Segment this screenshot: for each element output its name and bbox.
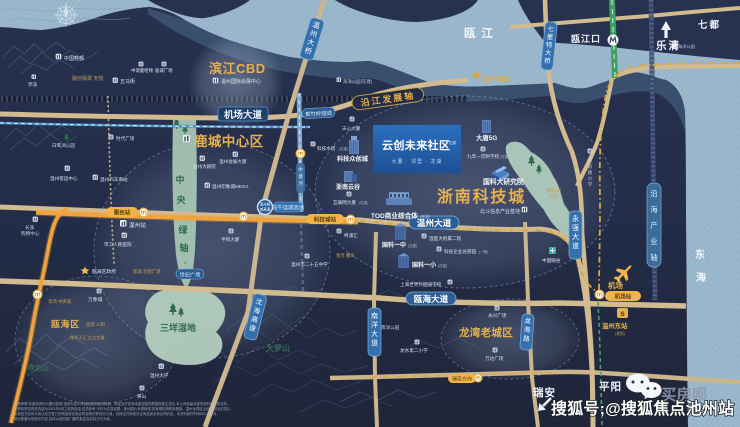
svg-text:平阳: 平阳 (599, 381, 622, 393)
svg-text:黄石山: 黄石山 (546, 187, 561, 194)
svg-text:瑞安方向: 瑞安方向 (452, 376, 472, 383)
svg-text:保利天汇 古江大厦: 保利天汇 古江大厦 (70, 334, 105, 341)
svg-text:市工人民医院: 市工人民医院 (104, 241, 132, 248)
svg-text:天心大厦: 天心大厦 (342, 125, 361, 132)
svg-text:永兴广场: 永兴广场 (488, 312, 507, 319)
svg-text:融创翡翠 天悦: 融创翡翠 天悦 (72, 75, 103, 82)
svg-text:浙南云谷: 浙南云谷 (336, 183, 361, 191)
svg-text:滨江CBD: 滨江CBD (209, 61, 266, 76)
svg-text:新城 吾悦广场: 新城 吾悦广场 (133, 268, 161, 275)
svg-text:路: 路 (588, 169, 593, 176)
svg-text:乌牛绕城高速: 乌牛绕城高速 (272, 204, 305, 212)
svg-text:华鸿 中央城: 华鸿 中央城 (48, 298, 72, 305)
svg-text:温州大学: 温州大学 (150, 372, 169, 379)
svg-text:温医大附属二院: 温医大附属二院 (429, 235, 462, 242)
svg-text:柯浦汇: 柯浦汇 (344, 232, 358, 239)
svg-text:部分配套为规划中内容,具体以政府部门最终批复及实际交付为准。: 部分配套为规划中内容,具体以政府部门最终批复及实际交付为准。 (14, 416, 113, 421)
svg-text:城高速: 城高速 (260, 207, 271, 212)
svg-text:轴: 轴 (650, 253, 657, 262)
svg-text:瓯海大道: 瓯海大道 (414, 293, 449, 304)
svg-text:机场站: 机场站 (615, 293, 632, 301)
svg-text:金茂 麓岛: 金茂 麓岛 (336, 252, 355, 259)
svg-text:大罗山: 大罗山 (266, 343, 290, 353)
svg-text:温州港口: 温州港口 (484, 74, 510, 83)
svg-text:(在建): (在建) (438, 263, 447, 268)
svg-text:大: 大 (572, 232, 579, 241)
svg-text:S: S (620, 311, 625, 318)
svg-text:中: 中 (298, 166, 303, 173)
svg-text:海洋公园(在建): 海洋公园(在建) (343, 78, 373, 85)
svg-text:(在建): (在建) (408, 243, 417, 248)
svg-text:前: 前 (588, 163, 593, 170)
svg-text:时代广场: 时代广场 (116, 135, 135, 142)
svg-text:洋: 洋 (371, 320, 378, 329)
svg-text:强: 强 (572, 224, 579, 232)
svg-text:瓯海区政府: 瓯海区政府 (92, 268, 116, 275)
svg-text:(在建): (在建) (359, 200, 368, 205)
svg-text:大: 大 (371, 329, 378, 338)
svg-text:温州印象城MEGA: 温州印象城MEGA (212, 183, 249, 190)
svg-text:公园: 公园 (548, 194, 558, 200)
svg-text:♪: ♪ (184, 260, 187, 266)
svg-text:上海世界外国语学校: 上海世界外国语学校 (400, 281, 442, 288)
svg-text:海: 海 (696, 271, 706, 284)
svg-text:(在建): (在建) (420, 214, 431, 219)
svg-text:郭溪: 郭溪 (28, 81, 38, 88)
svg-text:温州会展大厦: 温州会展大厦 (219, 158, 247, 165)
svg-text:大唐5G: 大唐5G (476, 133, 497, 142)
svg-text:温州东站: 温州东站 (602, 321, 628, 330)
svg-text:七都: 七都 (698, 19, 721, 31)
svg-text:搜狐号;@搜狐焦点池州站: 搜狐号;@搜狐焦点池州站 (551, 399, 734, 418)
svg-text:TOD商业综合体: TOD商业综合体 (371, 211, 418, 220)
svg-text:塘: 塘 (298, 173, 303, 180)
svg-text:中: 中 (175, 174, 184, 185)
svg-text:国科一小: 国科一小 (412, 261, 436, 269)
svg-text:产: 产 (650, 221, 657, 230)
svg-text:在建: 在建 (449, 140, 457, 145)
svg-text:南: 南 (371, 311, 378, 320)
svg-text:科技众创城: 科技众创城 (337, 155, 369, 163)
svg-text:科技城站: 科技城站 (314, 216, 337, 224)
svg-text:北斗信息产业基地: 北斗信息产业基地 (480, 208, 520, 215)
svg-text:科技水塔: 科技水塔 (317, 145, 336, 152)
svg-text:龙水第二小学: 龙水第二小学 (400, 347, 428, 354)
svg-text:互联网大厦: 互联网大厦 (333, 199, 356, 206)
svg-text:吹台山: 吹台山 (28, 363, 49, 372)
svg-text:道: 道 (572, 241, 579, 250)
svg-text:云创未来社区: 云创未来社区 (382, 138, 450, 152)
svg-text:浙南科技城: 浙南科技城 (437, 187, 526, 206)
svg-text:(在建): (在建) (339, 146, 348, 151)
svg-text:惠民站: 惠民站 (114, 209, 131, 217)
svg-text:大厦 · 邻里 · 龙湖: 大厦 · 邻里 · 龙湖 (392, 158, 443, 165)
svg-text:东: 东 (695, 248, 705, 261)
svg-text:温州汽车南站: 温州汽车南站 (100, 176, 128, 183)
svg-text:河: 河 (298, 180, 303, 186)
svg-text:万达广场: 万达广场 (485, 355, 504, 362)
svg-text:九年一贯制学校: 九年一贯制学校 (467, 153, 500, 160)
svg-text:乐清: 乐清 (656, 39, 681, 52)
svg-text:瓯江口: 瓯江口 (571, 33, 601, 44)
svg-text:三垟湿地: 三垟湿地 (160, 322, 196, 333)
svg-text:温州大剧院: 温州大剧院 (193, 163, 216, 170)
svg-text:道: 道 (371, 338, 378, 347)
svg-text:温州市二十五中学: 温州市二十五中学 (291, 261, 328, 268)
svg-text:瓯江: 瓯江 (464, 26, 499, 40)
svg-text:长溪: 长溪 (25, 224, 35, 231)
svg-text:央: 央 (176, 194, 186, 205)
svg-text:永: 永 (572, 214, 579, 223)
svg-text:温州绕: 温州绕 (260, 202, 271, 207)
svg-text:中国眼谷: 中国眼谷 (542, 257, 561, 264)
svg-text:温州国际会展中心: 温州国际会展中心 (221, 78, 261, 85)
svg-text:五马街: 五马街 (120, 78, 135, 85)
svg-text:首府 人和: 首府 人和 (86, 321, 105, 328)
svg-text:茶山: 茶山 (137, 393, 147, 400)
svg-text:国科一中: 国科一中 (382, 241, 406, 249)
svg-text:科技企业总部园: 科技企业总部园 (444, 248, 477, 255)
svg-text:万象城: 万象城 (88, 296, 103, 303)
svg-text:机场大道: 机场大道 (224, 109, 263, 121)
svg-text:轴: 轴 (179, 242, 188, 253)
svg-text:温州客运中心: 温州客运中心 (50, 175, 78, 182)
svg-text:国科大研究院: 国科大研究院 (483, 177, 524, 186)
svg-text:沿: 沿 (650, 189, 658, 198)
svg-text:温州站: 温州站 (129, 221, 146, 229)
svg-text:鹿城中心区: 鹿城中心区 (193, 133, 264, 149)
svg-text:中国鞋都: 中国鞋都 (64, 55, 84, 62)
svg-text:(在建): (在建) (500, 154, 509, 159)
svg-text:购物中心: 购物中心 (21, 230, 40, 237)
svg-text:中瑞曼哈顿: 中瑞曼哈顿 (131, 67, 154, 74)
svg-text:小: 小 (588, 175, 593, 182)
svg-text:买卖双方权利义务以双方签订的商品房买卖合同及附件等协议为准。: 买卖双方权利义务以双方签订的商品房买卖合同及附件等协议为准。具体交付标准详见商品… (14, 411, 220, 416)
svg-text:世纪广场: 世纪广场 (180, 271, 201, 279)
svg-text:海: 海 (650, 205, 658, 214)
svg-text:瑞安: 瑞安 (533, 386, 556, 399)
svg-text:瓯海区: 瓯海区 (51, 318, 80, 329)
svg-text:平和大厦: 平和大厦 (221, 236, 240, 243)
svg-text:南洋公园: 南洋公园 (381, 324, 400, 331)
svg-text:绿: 绿 (178, 224, 188, 235)
svg-text:村: 村 (588, 157, 593, 163)
svg-text:本资料所发布的内容为2021年6月之前的信息,仅供参考,不作: 本资料所发布的内容为2021年6月之前的信息,仅供参考,不作为交易依据。部分图片… (14, 406, 233, 411)
svg-text:(规划): (规划) (615, 331, 626, 336)
svg-text:学: 学 (588, 181, 593, 187)
svg-text:机场: 机场 (608, 280, 623, 290)
svg-text:白鹭洲公园: 白鹭洲公园 (52, 142, 75, 149)
svg-text:鹿城广场: 鹿城广场 (155, 67, 173, 74)
svg-text:业: 业 (650, 237, 657, 246)
svg-text:(一期): (一期) (479, 249, 488, 254)
svg-text:龙湾老城区: 龙湾老城区 (458, 326, 513, 339)
svg-text:免责声明:本宣传资料为要约邀请,相关内容不排除因政府相关规划: 免责声明:本宣传资料为要约邀请,相关内容不排除因政府相关规划、规定及开发商未能控… (14, 401, 230, 406)
